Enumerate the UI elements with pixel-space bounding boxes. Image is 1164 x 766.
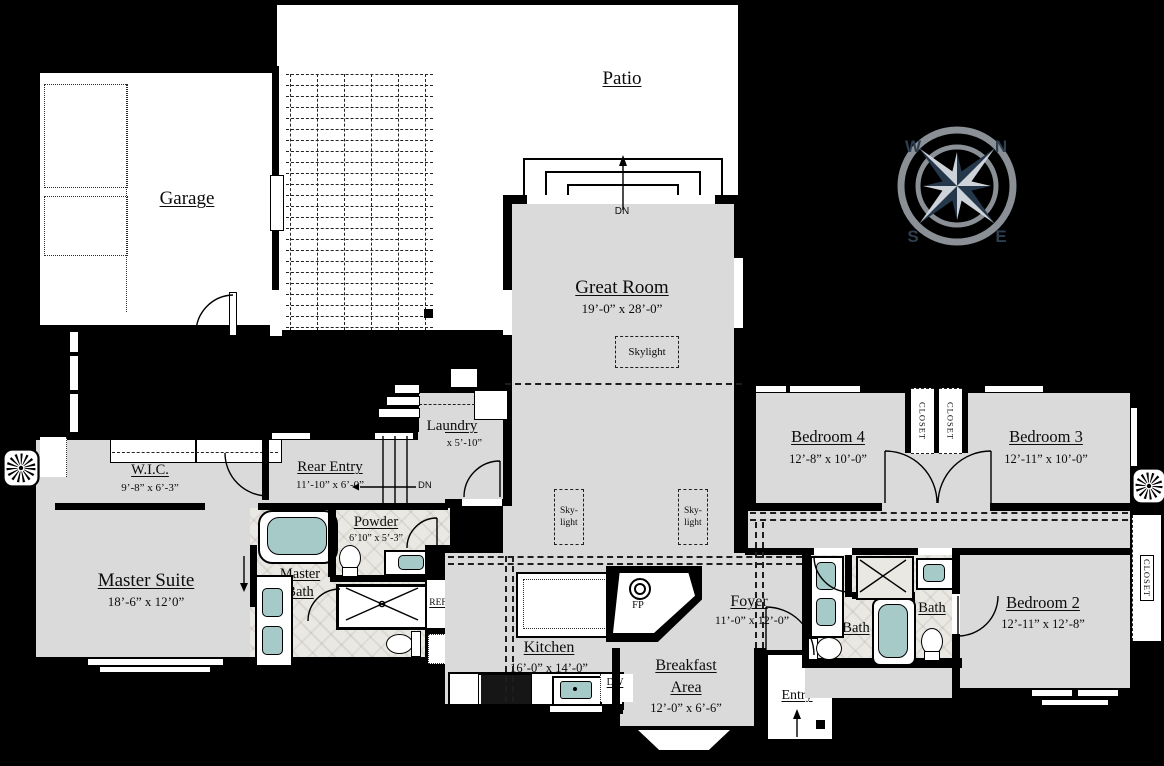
master-suite-window-sill bbox=[100, 667, 210, 672]
breakfast-left-wall bbox=[612, 648, 620, 736]
bedroom2-closet: CLOSET bbox=[1132, 515, 1161, 641]
skylight-small-right: Sky-light bbox=[678, 489, 708, 545]
great-room-dims: 19’-0” x 28’-0” bbox=[582, 302, 663, 317]
hall-bathtub bbox=[878, 604, 908, 658]
fence-tick bbox=[69, 352, 79, 356]
trellis-pergola bbox=[286, 74, 433, 330]
rear-entry-label: Rear Entry bbox=[297, 459, 362, 476]
garage-door-leaf bbox=[229, 292, 237, 336]
shower-divider-wall bbox=[845, 555, 852, 597]
bedroom4-label: Bedroom 4 bbox=[791, 428, 865, 446]
master-sink-2 bbox=[262, 626, 283, 655]
powder-sink bbox=[398, 555, 424, 570]
patio-label: Patio bbox=[602, 68, 641, 89]
linen-closet bbox=[40, 437, 67, 477]
garage-side-door bbox=[270, 175, 284, 231]
outdoor-step-3 bbox=[378, 408, 420, 418]
powder-toilet-base bbox=[342, 567, 358, 577]
garage-storage-outline-2 bbox=[44, 196, 128, 256]
hall-bath-sink-2 bbox=[816, 598, 836, 626]
patio-dn-label: DN bbox=[615, 206, 629, 217]
bedroom3-window-right bbox=[1131, 408, 1137, 466]
closet-wall-right bbox=[962, 385, 968, 453]
hall-bottom-wall bbox=[805, 548, 1135, 555]
bedroom2-bay-window bbox=[1032, 690, 1072, 696]
skylight-small-left-label: Sky-light bbox=[560, 505, 578, 530]
rear-entry-window-2 bbox=[375, 433, 413, 439]
master-bathtub bbox=[267, 517, 327, 555]
hall-bath-sink-1 bbox=[816, 562, 836, 590]
laundry-door-opening bbox=[462, 499, 502, 506]
bath2-label: Bath bbox=[918, 600, 945, 616]
ceiling-line bbox=[750, 512, 1128, 514]
fireplace-flue-ring-inner bbox=[634, 583, 646, 595]
bedroom4-dims: 12’-8” x 10’-0” bbox=[789, 452, 867, 466]
ceiling-line bbox=[750, 519, 1128, 521]
ceiling-line bbox=[755, 522, 757, 648]
hall-bath-door-gap bbox=[814, 548, 852, 555]
kitchen-island-counter-line bbox=[523, 579, 607, 629]
ceiling-line bbox=[448, 556, 802, 558]
master-toilet-tank bbox=[411, 631, 421, 657]
breakfast-label-2: Area bbox=[670, 679, 701, 697]
great-room-left-window bbox=[503, 290, 512, 335]
stairs-dn-label: DN bbox=[418, 481, 432, 492]
ceiling-break-line bbox=[505, 383, 742, 385]
garage-storage-line bbox=[126, 84, 127, 312]
great-room-label: Great Room bbox=[575, 277, 668, 298]
wic-rod-line bbox=[112, 452, 278, 453]
wing2-left-wall bbox=[748, 385, 756, 510]
garage-rear-door-opening bbox=[270, 290, 282, 336]
bedroom2-door-gap bbox=[952, 594, 960, 634]
skylight-small-right-label: Sky-light bbox=[684, 505, 702, 530]
bedroom3-dims: 12’-11” x 10’-0” bbox=[1004, 452, 1088, 466]
rear-entry-bottom-wall bbox=[258, 503, 448, 510]
bedroom2-bay-sill bbox=[1042, 700, 1108, 705]
master-suite-window bbox=[88, 659, 223, 665]
rear-entry-window bbox=[272, 433, 310, 439]
master-sink-1 bbox=[262, 588, 283, 617]
powder-divider-wall bbox=[328, 505, 336, 577]
foyer-dims: 11’-0” x 12’-0” bbox=[715, 614, 789, 627]
laundry-cabinet bbox=[474, 390, 508, 420]
outdoor-step-1 bbox=[394, 384, 420, 394]
powder-label: Powder bbox=[354, 514, 398, 530]
breakfast-label-1: Breakfast bbox=[655, 657, 716, 675]
wing-top-wall bbox=[28, 432, 418, 440]
ceiling-line bbox=[512, 556, 514, 702]
hall-bath-toilet-bowl bbox=[816, 637, 842, 660]
closet-a-label: CLOSET bbox=[918, 402, 928, 440]
powder-dims: 6’10” x 5’-3” bbox=[349, 533, 403, 544]
bedroom3-bottom-wall bbox=[990, 503, 1138, 511]
pergola-post bbox=[424, 309, 433, 318]
ceiling-line bbox=[505, 556, 507, 702]
fence-tick-2 bbox=[69, 390, 79, 394]
kitchen-sink-drain bbox=[573, 687, 577, 691]
rear-entry-dims: 11’-10” x 6’-0” bbox=[296, 479, 364, 491]
ceiling-line bbox=[762, 522, 764, 648]
bedroom3-window-top bbox=[985, 386, 1043, 392]
laundry-porch bbox=[448, 366, 480, 390]
wic-divider-wall bbox=[262, 440, 269, 500]
master-toilet-bowl bbox=[386, 634, 413, 654]
closet-a: CLOSET bbox=[911, 388, 934, 454]
hall-bath-label: Bath bbox=[842, 620, 869, 636]
ceiling-fan-icon bbox=[1131, 467, 1164, 505]
wic-dims: 9’-8” x 6’-3” bbox=[121, 482, 178, 494]
wic-label: W.I.C. bbox=[131, 462, 169, 478]
kitchen-window bbox=[550, 706, 602, 712]
kitchen-label: Kitchen bbox=[524, 639, 575, 657]
bedroom2-label: Bedroom 2 bbox=[1006, 594, 1080, 612]
breakfast-dims: 12’-0” x 6’-6” bbox=[650, 701, 722, 715]
bedroom4-window bbox=[756, 386, 786, 392]
master-shower bbox=[336, 584, 430, 630]
master-suite-dims: 18’-6” x 12’0” bbox=[108, 595, 185, 610]
great-room-right-wall bbox=[734, 195, 743, 562]
great-room-patio-opening bbox=[527, 195, 715, 204]
ceiling-fan-icon bbox=[2, 448, 40, 488]
laundry-shelf-line bbox=[419, 404, 475, 405]
compass-e: E bbox=[995, 227, 1006, 246]
bedroom2-bay-window-2 bbox=[1078, 690, 1118, 696]
compass-rose: W N S E bbox=[882, 112, 1032, 262]
entry-post bbox=[816, 720, 825, 729]
bedroom2-closet-label: CLOSET bbox=[1140, 555, 1154, 601]
compass-n: N bbox=[995, 137, 1007, 156]
skylight-main-label: Skylight bbox=[628, 346, 665, 358]
outdoor-step-2 bbox=[386, 396, 420, 406]
hall-shower bbox=[856, 556, 914, 600]
bedroom-hall bbox=[748, 510, 1138, 548]
bedroom4-bottom-wall bbox=[748, 503, 882, 511]
ceiling-line bbox=[448, 563, 802, 565]
compass-s: S bbox=[907, 227, 918, 246]
closet-b: CLOSET bbox=[939, 388, 962, 454]
bedroom2-dims: 12’-11” x 12’-8” bbox=[1001, 617, 1085, 631]
wic-bottom-wall bbox=[55, 503, 205, 510]
great-room-right-window bbox=[734, 258, 743, 328]
fp-label: FP bbox=[632, 600, 644, 612]
closet-b-label: CLOSET bbox=[946, 402, 956, 440]
master-suite-label: Master Suite bbox=[98, 570, 195, 591]
garage-storage-outline bbox=[44, 84, 128, 188]
garage-label: Garage bbox=[160, 188, 215, 209]
bedroom4-window-2 bbox=[790, 386, 860, 392]
garage-fence-link bbox=[70, 332, 78, 432]
skylight-small-left: Sky-light bbox=[554, 489, 584, 545]
compass-w: W bbox=[905, 137, 922, 156]
bath2-door-gap bbox=[918, 548, 952, 555]
skylight-main: Skylight bbox=[615, 336, 679, 368]
floor-plan: Patio Garage DN Great Room 19’-0” x 28’-… bbox=[0, 0, 1164, 766]
bedroom3-label: Bedroom 3 bbox=[1009, 428, 1083, 446]
bath2-sink bbox=[923, 564, 945, 582]
bath2-toilet-base bbox=[924, 651, 940, 661]
